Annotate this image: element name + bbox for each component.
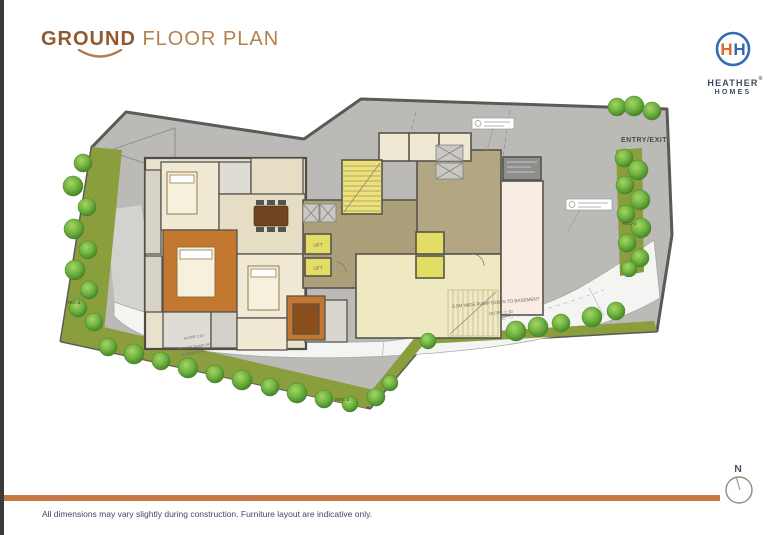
north-compass-icon: N	[726, 463, 752, 503]
entry-exit-label: ENTRY/EXIT	[621, 137, 667, 144]
rec-2-label: REC-2	[335, 397, 350, 403]
rec-1-label: REC-1	[622, 221, 637, 227]
north-label: N	[734, 463, 742, 475]
disclaimer-text: All dimensions may vary slightly during …	[42, 509, 372, 519]
rec-3-label: REC-3	[66, 300, 81, 306]
lift-label-2: LIFT	[313, 266, 322, 271]
site-plan-drawing: ENTRY/EXIT 6.0M WIDE RAMP DOWN TO BASEME…	[4, 0, 777, 535]
footer-divider	[4, 495, 720, 501]
floor-plan-page: GROUND FLOOR PLAN H H HEATHER® HOMES	[0, 0, 777, 535]
lift-label-1: LIFT	[313, 243, 322, 248]
